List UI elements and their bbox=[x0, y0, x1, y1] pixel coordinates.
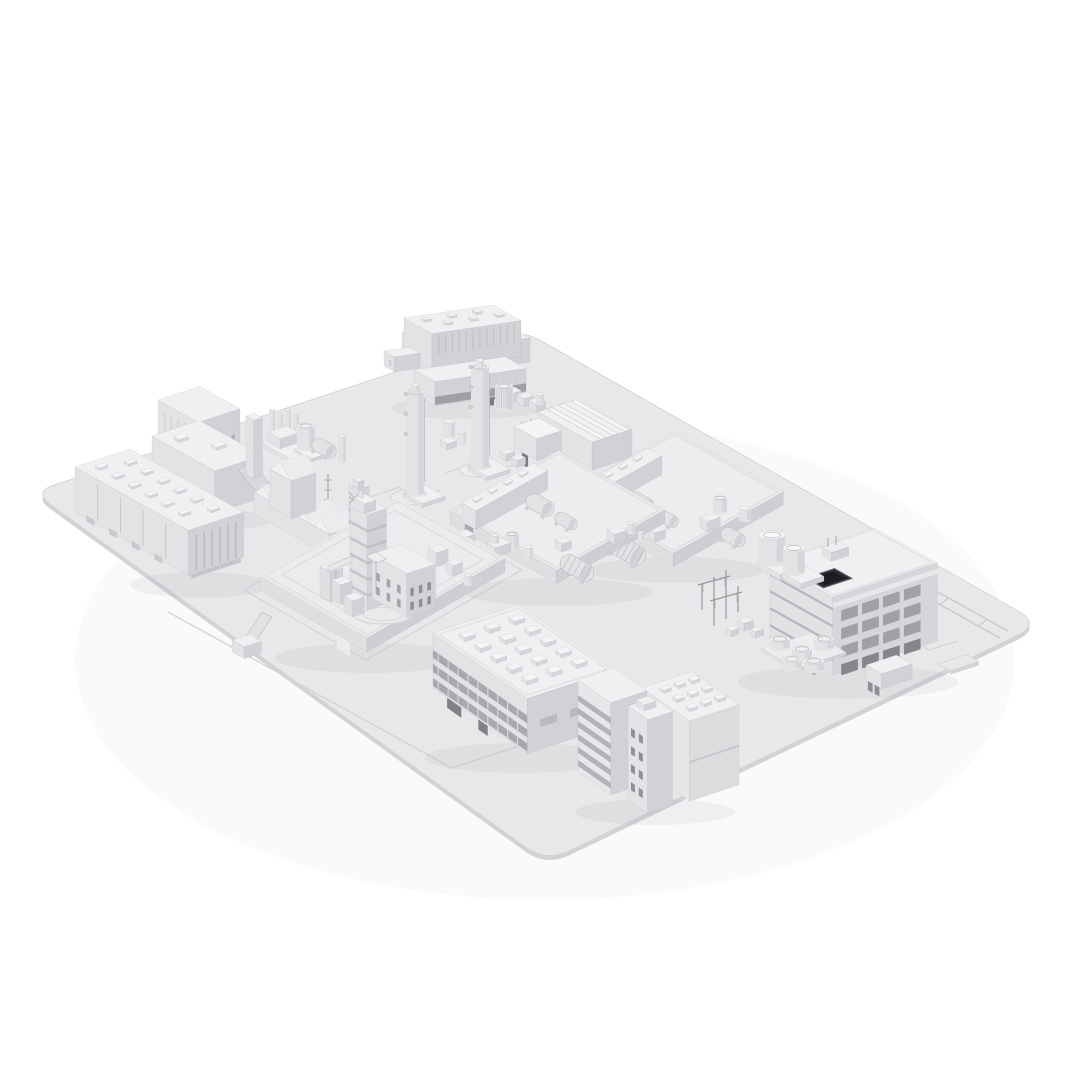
office-mullion bbox=[477, 681, 478, 690]
column-2-shade bbox=[483, 367, 489, 467]
office-mullion bbox=[477, 709, 478, 718]
interm-drum2-shade bbox=[463, 432, 465, 444]
column-1-tip-top bbox=[411, 384, 419, 387]
ya-drum-2-top bbox=[523, 545, 533, 548]
column-1-nozzle bbox=[404, 432, 409, 436]
office-mullion bbox=[467, 688, 468, 697]
render-viewport bbox=[0, 0, 1080, 1080]
office-mullion bbox=[448, 688, 449, 697]
vent-annex-face-se bbox=[690, 705, 739, 801]
annex-window bbox=[419, 599, 422, 608]
office-mullion bbox=[487, 688, 488, 697]
interm-drum-shade bbox=[451, 421, 455, 437]
annex-window bbox=[410, 601, 414, 610]
office-mullion bbox=[448, 660, 449, 669]
boiler-tower-face-sw bbox=[246, 416, 254, 478]
office-mullion bbox=[517, 722, 518, 731]
skid-column-top bbox=[277, 413, 283, 415]
office-mullion bbox=[438, 667, 439, 676]
office-mullion bbox=[438, 681, 439, 690]
skid-column-top bbox=[285, 409, 291, 411]
interm-drum2-top bbox=[458, 431, 466, 434]
stair-tower-face-se bbox=[648, 712, 673, 814]
ya-stack-1-top bbox=[627, 522, 635, 525]
shadow-0 bbox=[130, 572, 270, 598]
annex-window bbox=[427, 582, 431, 591]
office-mullion bbox=[458, 681, 459, 690]
office-mullion bbox=[517, 708, 518, 717]
ya-comp-drum-top bbox=[491, 534, 499, 537]
annex-window bbox=[427, 596, 431, 605]
column-1-shade bbox=[418, 392, 424, 494]
small-column-top bbox=[338, 435, 346, 438]
office-mullion bbox=[517, 736, 518, 745]
skid-column-top bbox=[293, 413, 299, 415]
skid-column-top bbox=[269, 409, 275, 411]
column-2-nozzle bbox=[469, 405, 474, 409]
office-mullion bbox=[467, 674, 468, 683]
office-mullion bbox=[438, 653, 439, 662]
finned-drum-shade bbox=[507, 386, 513, 410]
annex-window bbox=[410, 587, 414, 596]
office-mullion bbox=[507, 702, 508, 711]
office-mullion bbox=[497, 709, 498, 718]
small-column-shade bbox=[343, 436, 345, 462]
ya-stack-2-top bbox=[638, 531, 644, 533]
column-2-nozzle bbox=[469, 385, 474, 389]
office-mullion bbox=[458, 695, 459, 704]
office-mullion bbox=[507, 730, 508, 739]
stair-tower-face-sw bbox=[628, 706, 648, 814]
column-1-nozzle bbox=[404, 412, 409, 416]
office-mullion bbox=[487, 702, 488, 711]
pump-drum-top bbox=[536, 393, 544, 396]
tower-stack-top bbox=[359, 491, 364, 493]
office-mullion bbox=[497, 695, 498, 704]
interm-drum-top bbox=[443, 419, 455, 423]
column-1-nozzle bbox=[404, 392, 409, 396]
office-mullion bbox=[487, 716, 488, 725]
office-mullion bbox=[458, 667, 459, 676]
office-mullion bbox=[467, 702, 468, 711]
annex-window bbox=[419, 585, 422, 594]
office-mullion bbox=[448, 674, 449, 683]
column-2-tip-top bbox=[476, 359, 484, 362]
office-mullion bbox=[507, 716, 508, 725]
skid-column-shade bbox=[273, 410, 275, 432]
column-2-nozzle bbox=[469, 365, 474, 369]
yb-drum-4-top bbox=[739, 506, 751, 510]
office-mullion bbox=[497, 723, 498, 732]
boiler-tower-face-se bbox=[254, 418, 263, 479]
industrial-plant-3d-render bbox=[0, 0, 1080, 1080]
office-mullion bbox=[477, 695, 478, 704]
inner-drum-top bbox=[464, 574, 472, 577]
